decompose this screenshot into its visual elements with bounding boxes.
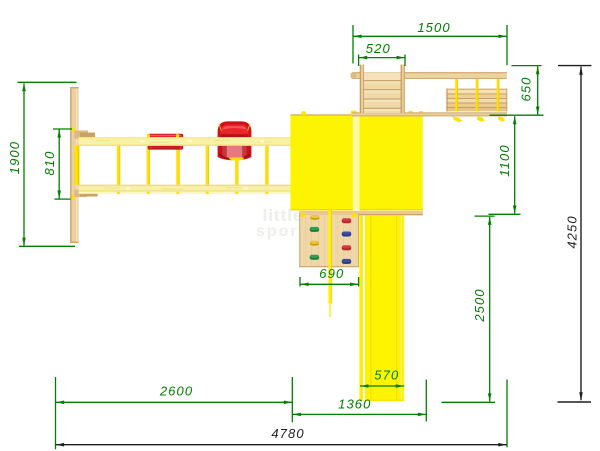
svg-text:690: 690: [319, 266, 344, 281]
svg-text:520: 520: [366, 41, 391, 56]
svg-text:1500: 1500: [417, 20, 450, 35]
svg-text:1100: 1100: [497, 144, 512, 176]
svg-text:sport: sport: [256, 223, 306, 240]
svg-text:1360: 1360: [338, 397, 371, 412]
svg-text:810: 810: [42, 151, 57, 176]
svg-text:2500: 2500: [472, 288, 487, 322]
svg-text:2600: 2600: [159, 383, 193, 398]
svg-text:4250: 4250: [564, 215, 579, 248]
svg-text:1900: 1900: [7, 141, 22, 174]
svg-text:4780: 4780: [271, 426, 304, 441]
svg-text:650: 650: [519, 77, 534, 102]
svg-text:570: 570: [374, 367, 399, 382]
